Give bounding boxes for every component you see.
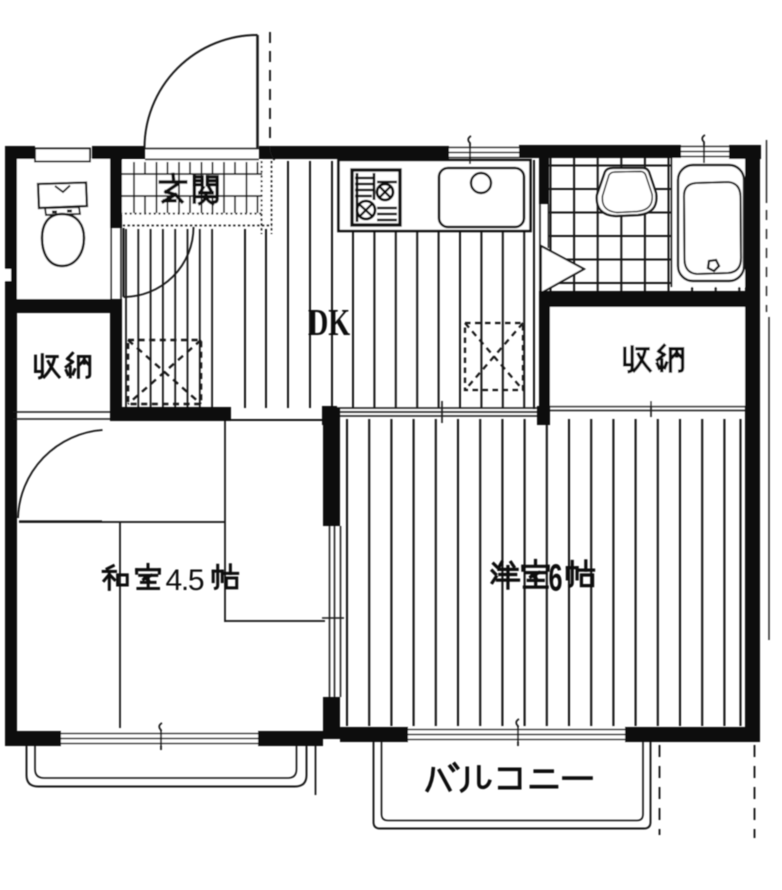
svg-text:6: 6: [549, 558, 563, 600]
svg-text:DK: DK: [308, 302, 350, 344]
svg-text:4.5: 4.5: [166, 564, 205, 597]
